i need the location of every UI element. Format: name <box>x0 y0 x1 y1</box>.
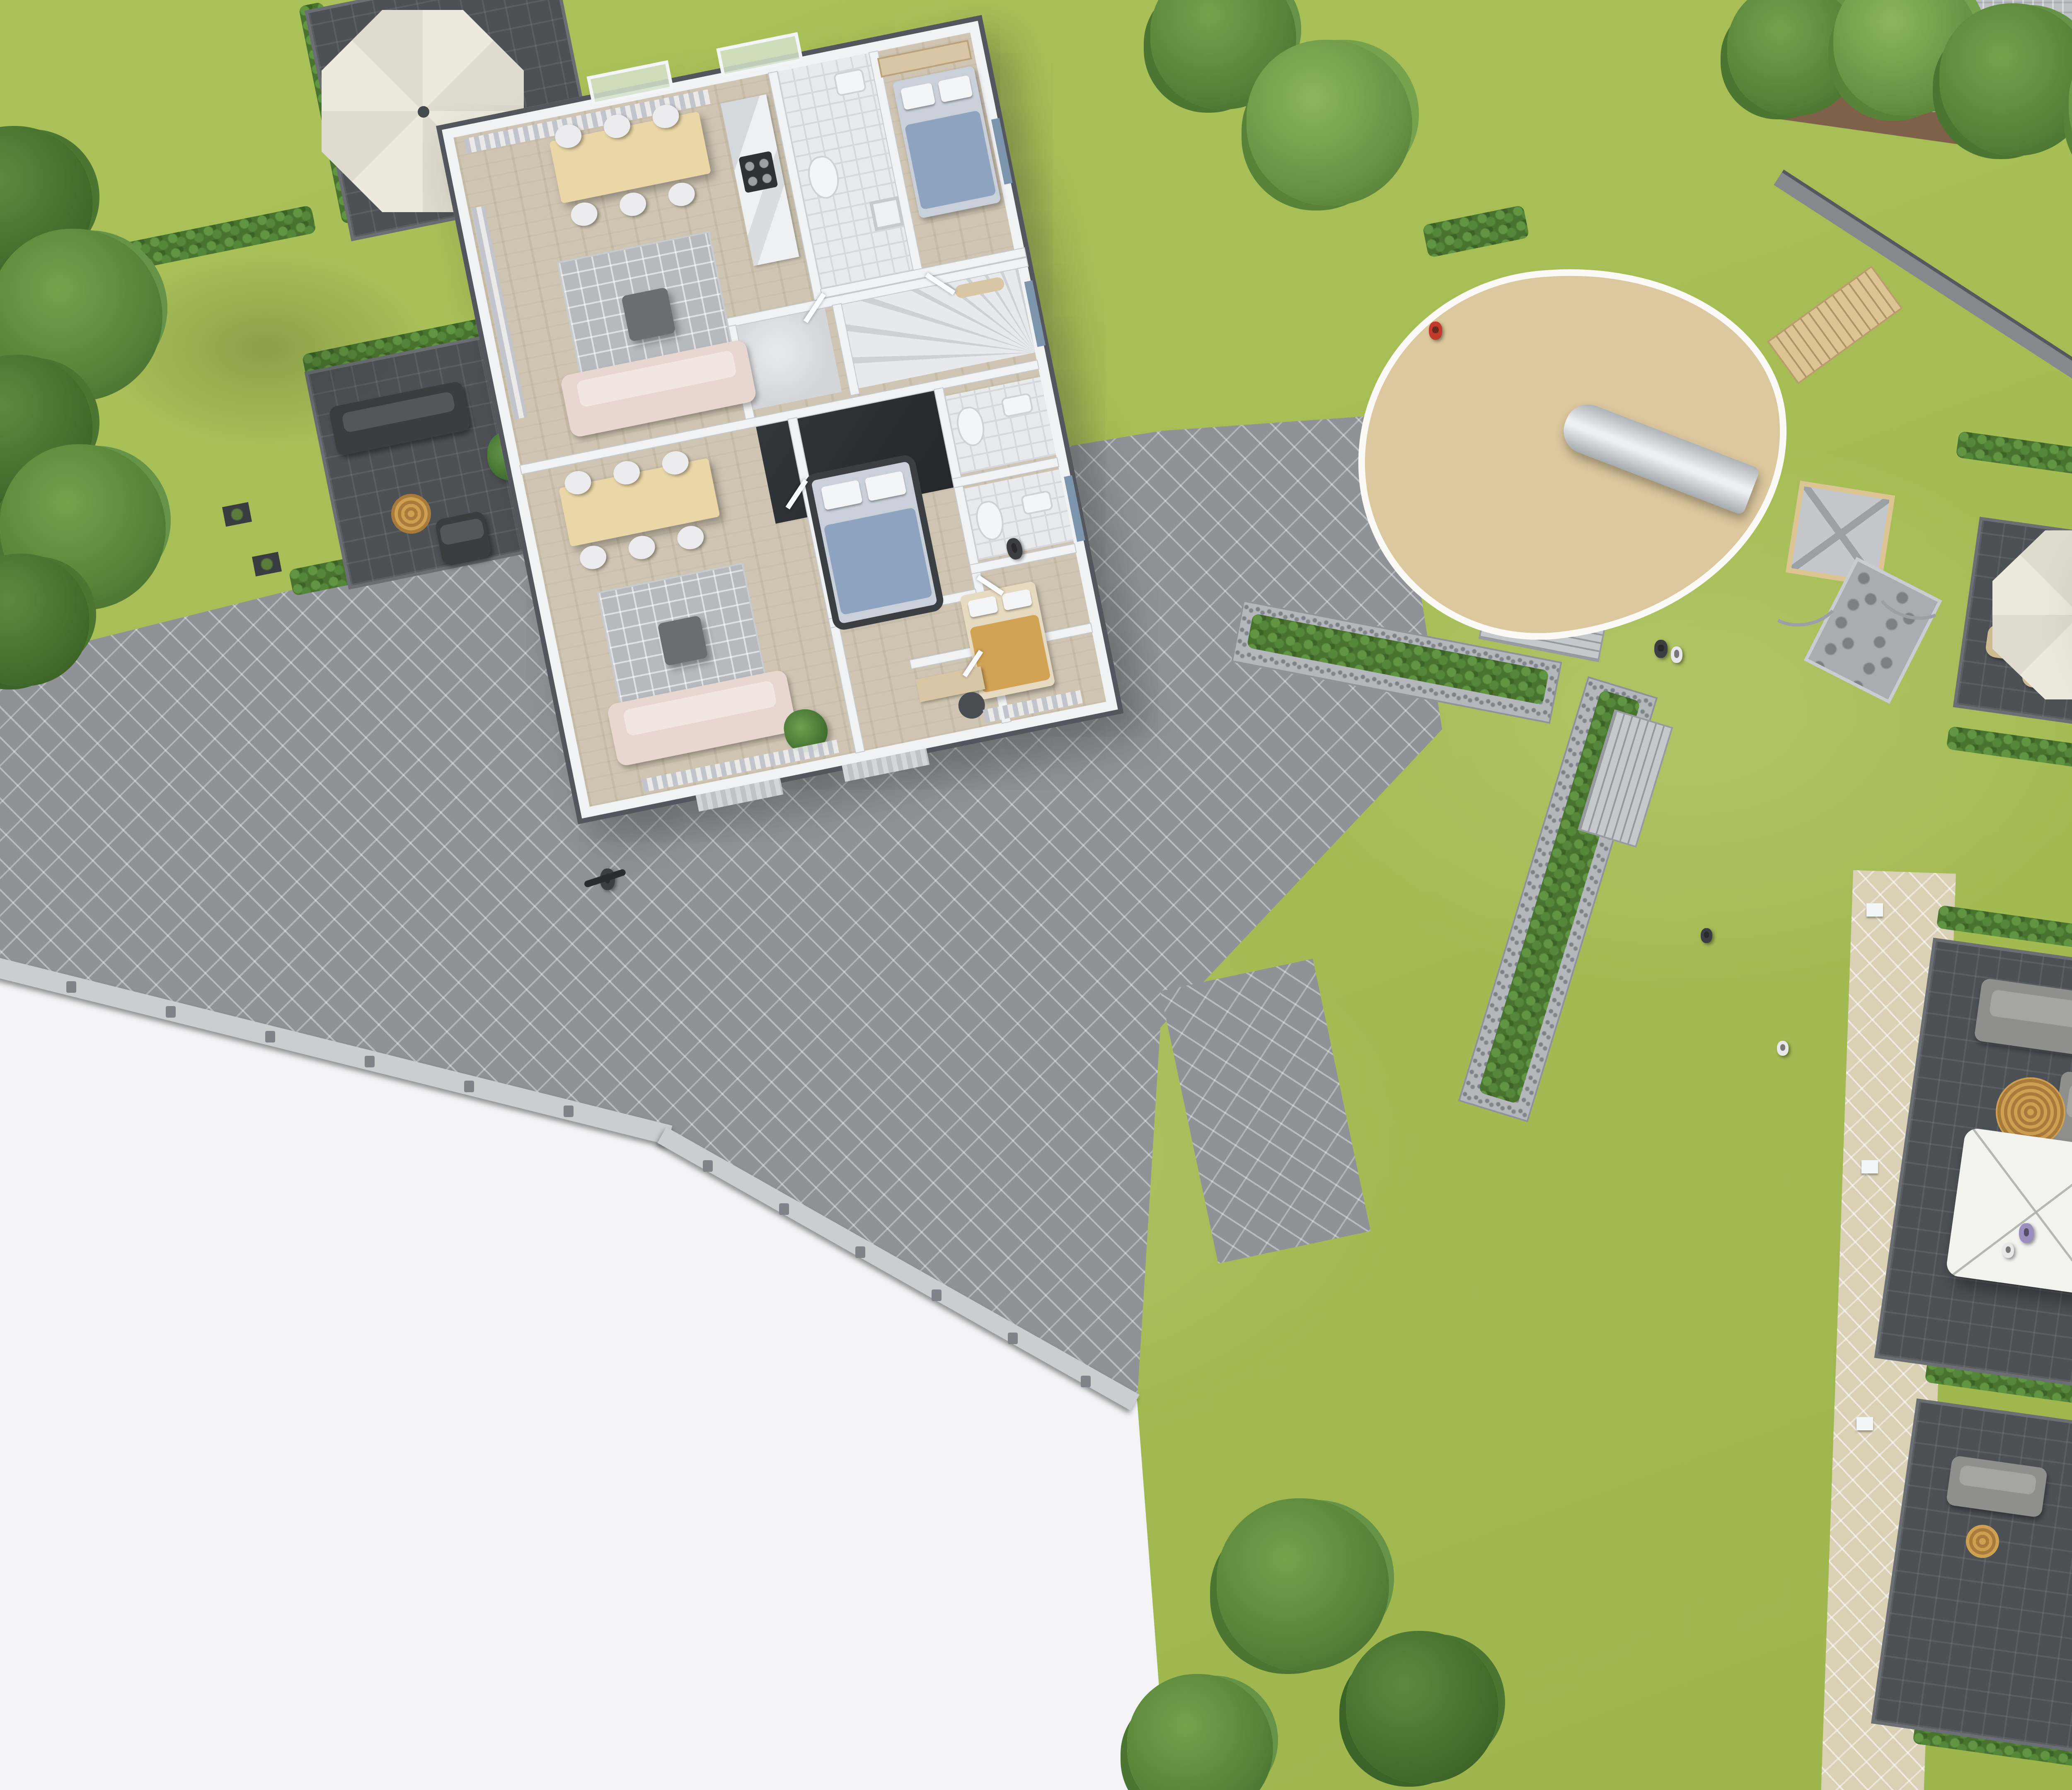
site-plan-canvas <box>0 0 2072 1790</box>
tree-shadow <box>1973 381 2072 1017</box>
adult <box>2019 1223 2034 1243</box>
person <box>1701 928 1712 943</box>
tree <box>1346 1631 1498 1783</box>
tree <box>1939 3 2072 156</box>
tree <box>1217 1498 1389 1671</box>
tree <box>1127 1674 1273 1790</box>
child <box>1429 322 1442 340</box>
child <box>2002 1243 2014 1258</box>
person <box>1671 646 1682 663</box>
pedestrian <box>1005 537 1024 561</box>
layer-trees-actors <box>0 0 2072 1790</box>
person <box>1777 1041 1789 1056</box>
tree <box>1247 40 1412 206</box>
person <box>1654 640 1668 658</box>
